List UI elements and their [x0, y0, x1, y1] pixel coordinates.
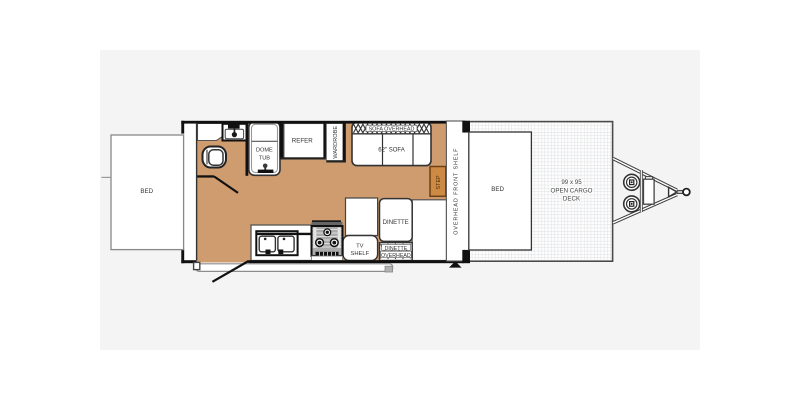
svg-text:SHELF: SHELF: [350, 251, 369, 257]
svg-text:DOME: DOME: [256, 148, 273, 154]
svg-text:REFER: REFER: [292, 138, 314, 145]
svg-text:WARDROBE: WARDROBE: [333, 126, 339, 159]
svg-text:BED: BED: [140, 188, 153, 195]
svg-text:DINETTE: DINETTE: [383, 219, 409, 226]
svg-text:DECK: DECK: [563, 196, 581, 203]
svg-text:OPEN CARGO: OPEN CARGO: [551, 187, 593, 194]
svg-text:OVERHEAD FRONT SHELF: OVERHEAD FRONT SHELF: [454, 148, 460, 235]
svg-text:TUB: TUB: [259, 156, 270, 162]
svg-text:TV: TV: [356, 244, 364, 250]
svg-text:99 x 95: 99 x 95: [561, 179, 582, 186]
svg-text:SOFA OVERHEAD: SOFA OVERHEAD: [369, 127, 415, 133]
svg-text:OVERHEAD: OVERHEAD: [381, 253, 411, 259]
svg-text:62" SOFA: 62" SOFA: [378, 147, 404, 153]
svg-text:BED: BED: [491, 186, 504, 193]
svg-text:STEP: STEP: [436, 175, 442, 189]
